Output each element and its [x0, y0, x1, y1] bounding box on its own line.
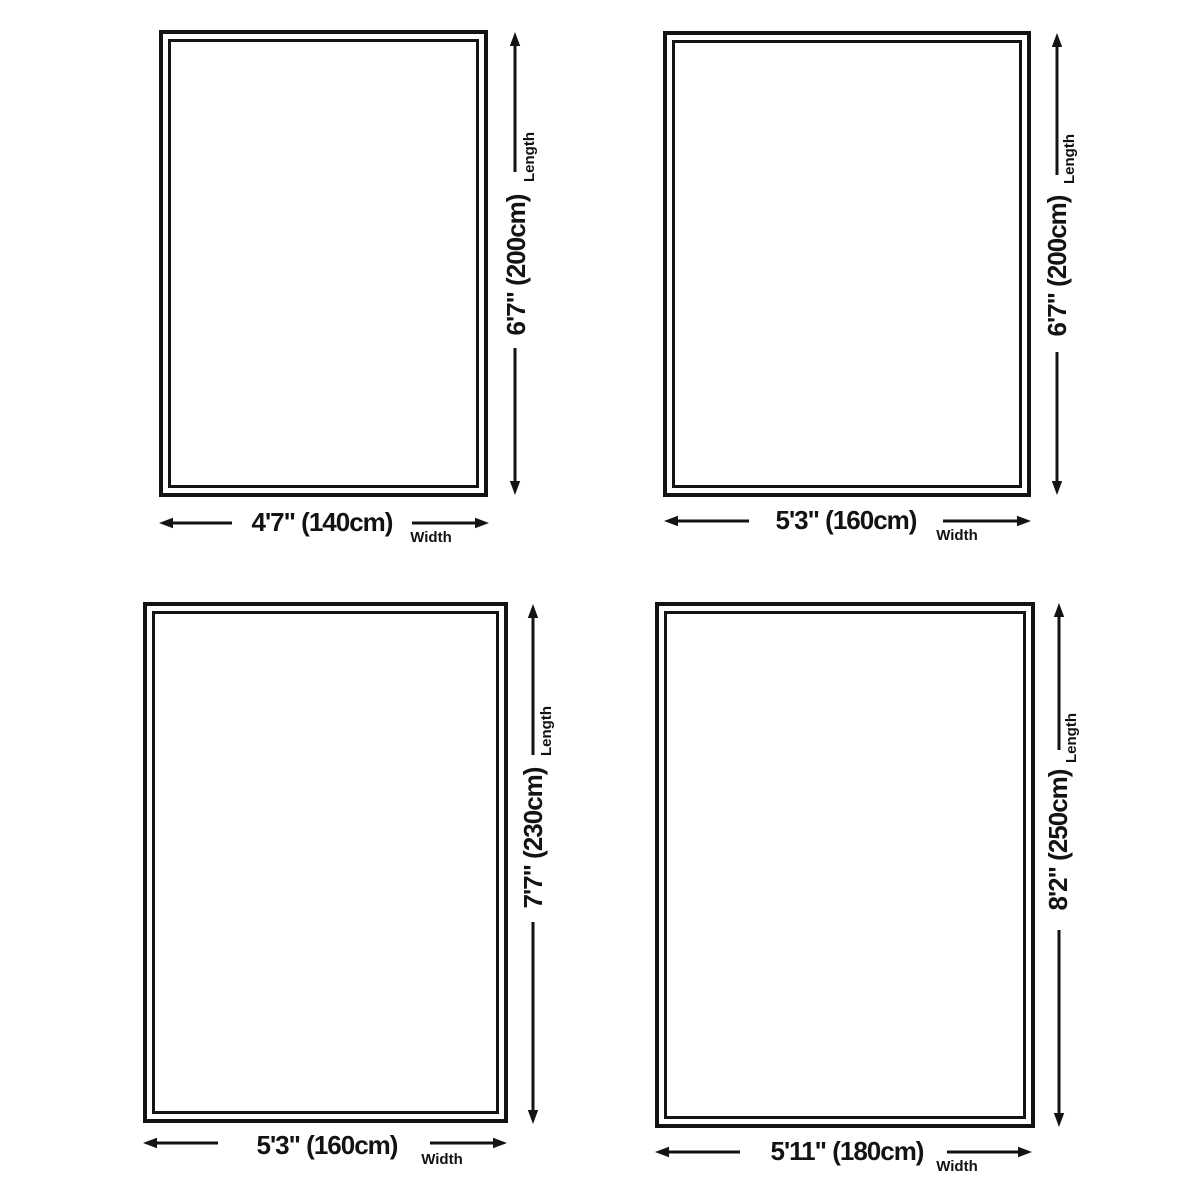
width-arrow-left-icon — [664, 513, 749, 529]
width-arrow-right-icon — [430, 1135, 507, 1151]
length-dimension-text: 8'2" (250cm) — [1042, 750, 1074, 930]
length-arrow-down-icon — [507, 348, 523, 495]
width-dimension-text: 5'3" (160cm) — [232, 1130, 422, 1160]
width-axis-label: Width — [922, 527, 992, 545]
length-dimension-text: 6'7" (200cm) — [500, 175, 532, 355]
length-arrow-down-icon — [525, 922, 541, 1124]
width-dimension-text: 5'11" (180cm) — [742, 1136, 952, 1166]
length-arrow-down-icon — [1051, 930, 1067, 1127]
rug-inner-border — [152, 611, 499, 1114]
width-axis-label: Width — [407, 1151, 477, 1169]
rug-inner-border — [672, 40, 1022, 488]
rug-inner-border — [664, 611, 1026, 1119]
width-axis-label: Width — [922, 1158, 992, 1176]
rug-outline — [663, 31, 1031, 497]
width-dimension-text: 5'3" (160cm) — [751, 505, 941, 535]
length-arrow-down-icon — [1049, 352, 1065, 495]
width-arrow-left-icon — [159, 515, 232, 531]
width-dimension-text: 4'7" (140cm) — [232, 507, 412, 537]
rug-size-diagram: Length 6'7" (200cm) 4'7" (140cm) Width L… — [0, 0, 1200, 1200]
width-arrow-left-icon — [655, 1144, 740, 1160]
rug-inner-border — [168, 39, 479, 488]
length-dimension-text: 7'7" (230cm) — [517, 748, 549, 928]
width-axis-label: Width — [396, 529, 466, 547]
length-dimension-text: 6'7" (200cm) — [1041, 176, 1073, 356]
rug-outline — [159, 30, 488, 497]
rug-outline — [143, 602, 508, 1123]
rug-outline — [655, 602, 1035, 1128]
width-arrow-left-icon — [143, 1135, 218, 1151]
